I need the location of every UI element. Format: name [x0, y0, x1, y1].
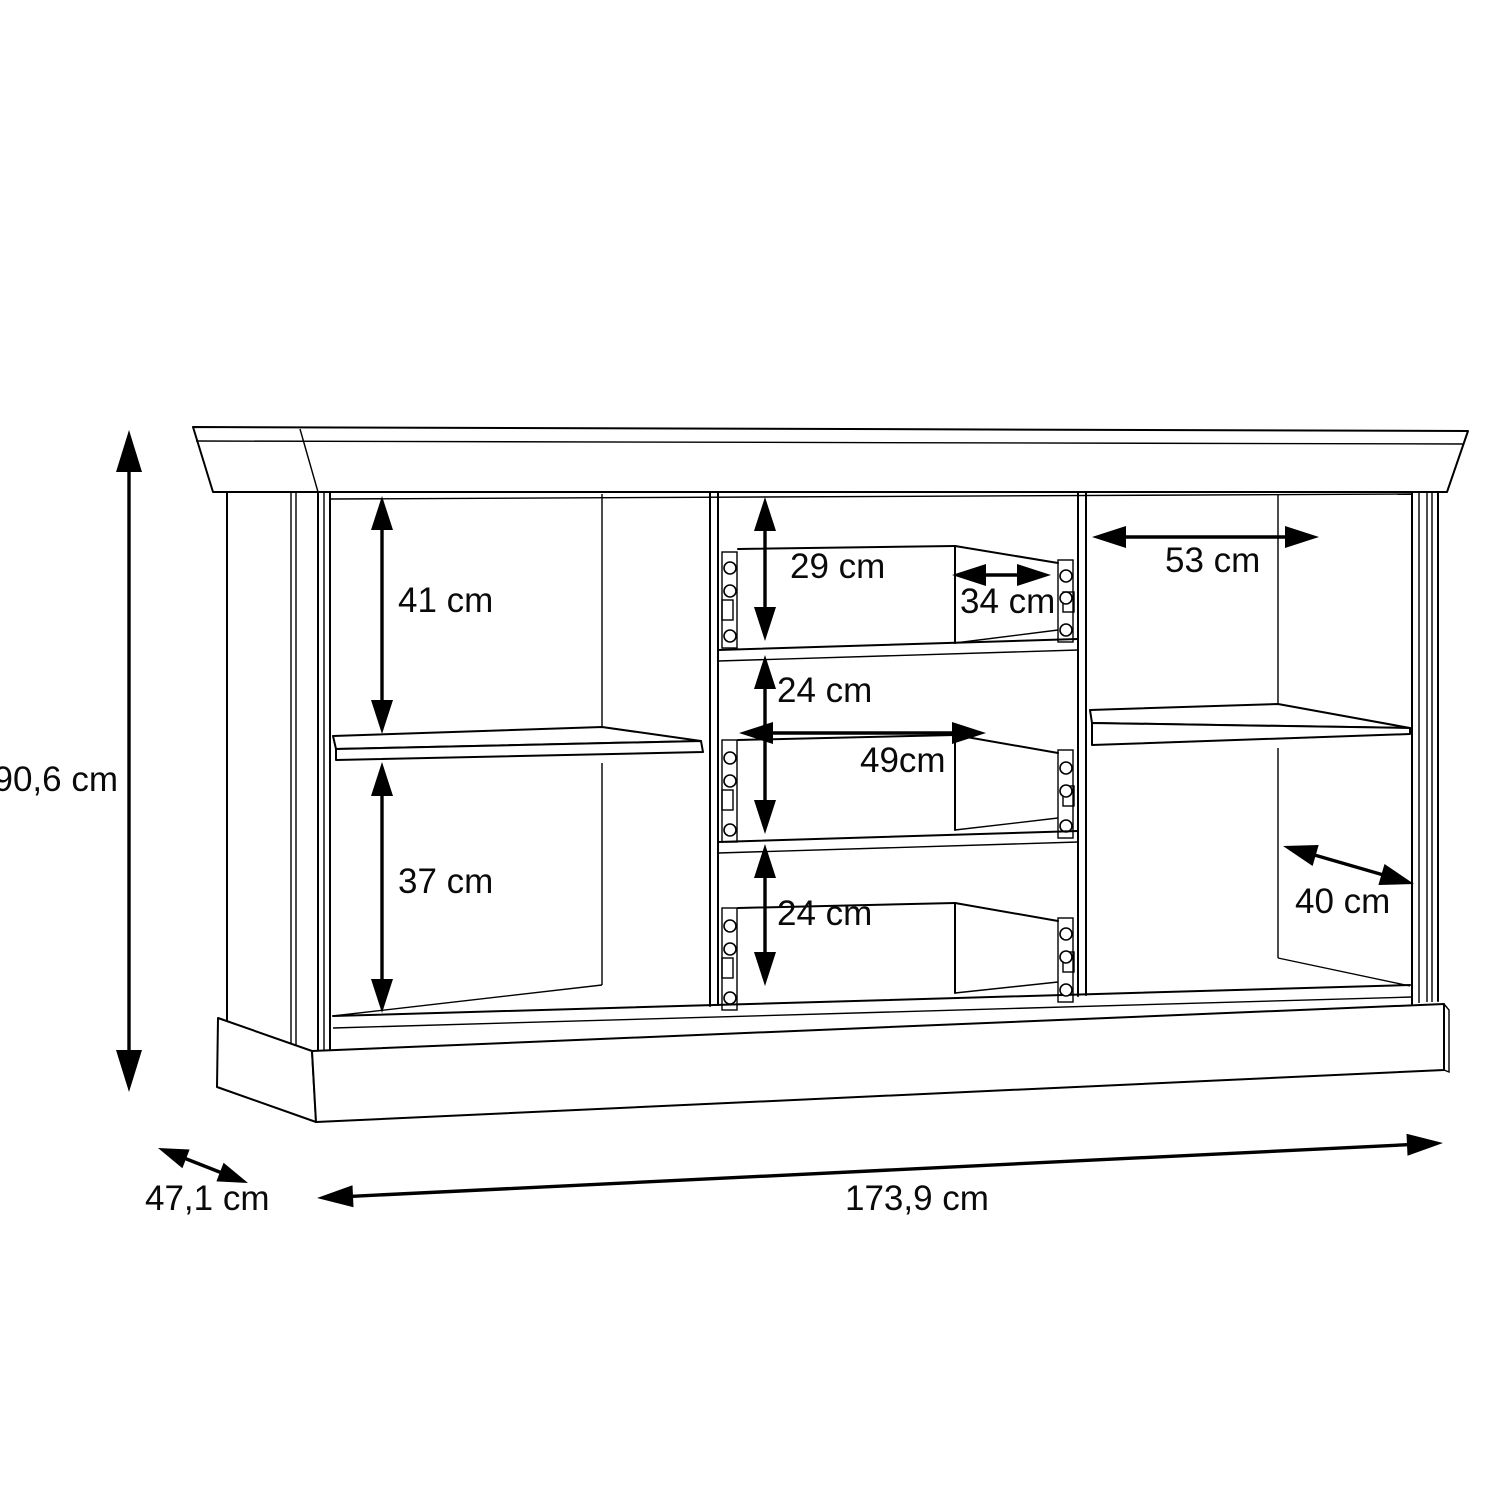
- dimension-label-mid-bottom: 24 cm: [777, 894, 872, 933]
- dimension-label-depth: 47,1 cm: [145, 1179, 270, 1218]
- cabinet-cornice: [193, 427, 1468, 492]
- dimension-drawer-width: 34 cm: [952, 564, 1055, 621]
- dimension-label-height: 90,6 cm: [0, 760, 118, 799]
- dimension-right-lower: 40 cm: [1283, 845, 1414, 921]
- dimension-label-width: 173,9 cm: [845, 1179, 989, 1218]
- drawer-3: [722, 903, 1074, 1010]
- drawer-separator-1: [718, 639, 1078, 650]
- dimension-height: 90,6 cm: [0, 430, 142, 1092]
- dimension-label-drawer-width: 34 cm: [960, 582, 1055, 621]
- dimension-label-left-lower: 37 cm: [398, 862, 493, 901]
- dimension-label-right-upper: 53 cm: [1165, 541, 1260, 580]
- dimension-label-mid-top: 29 cm: [790, 547, 885, 586]
- dimension-label-mid-middle: 24 cm: [777, 671, 872, 710]
- technical-drawing-page: 90,6 cm 41 cm 37 cm 29 cm 34 cm 24 cm: [0, 0, 1500, 1500]
- dimension-width: 173,9 cm: [317, 1134, 1443, 1218]
- dimension-inner-width: 49cm: [739, 722, 986, 780]
- dimension-left-lower: 37 cm: [371, 762, 493, 1013]
- dimension-mid-top: 29 cm: [754, 497, 885, 641]
- left-compartment: [333, 494, 703, 1016]
- dimension-left-upper: 41 cm: [371, 496, 493, 734]
- drawer-separator-2: [718, 831, 1078, 842]
- right-shelf: [1090, 704, 1410, 745]
- cabinet-base-plinth: [217, 985, 1449, 1122]
- sideboard-dimension-diagram: 90,6 cm 41 cm 37 cm 29 cm 34 cm 24 cm: [0, 0, 1500, 1500]
- dimension-right-upper: 53 cm: [1092, 526, 1319, 580]
- dimension-depth: 47,1 cm: [145, 1148, 270, 1218]
- left-shelf: [333, 727, 703, 760]
- dimension-mid-middle: 24 cm: [754, 655, 872, 834]
- dimension-label-right-lower: 40 cm: [1295, 882, 1390, 921]
- dimension-mid-bottom: 24 cm: [754, 844, 872, 986]
- dimension-label-left-upper: 41 cm: [398, 581, 493, 620]
- dimension-label-inner-width: 49cm: [860, 741, 946, 780]
